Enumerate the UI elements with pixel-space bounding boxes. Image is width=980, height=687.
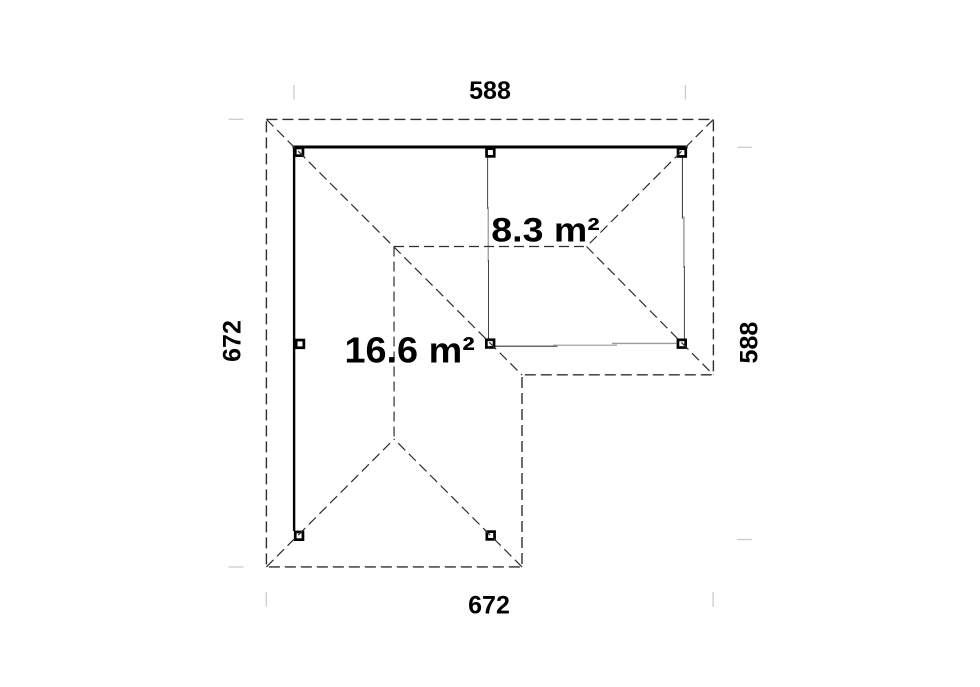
svg-text:672: 672 bbox=[219, 320, 247, 362]
svg-text:16.6 m²: 16.6 m² bbox=[345, 330, 475, 371]
svg-text:672: 672 bbox=[468, 592, 510, 620]
svg-text:588: 588 bbox=[469, 77, 511, 105]
svg-text:588: 588 bbox=[736, 322, 764, 364]
svg-text:8.3 m²: 8.3 m² bbox=[491, 211, 600, 249]
